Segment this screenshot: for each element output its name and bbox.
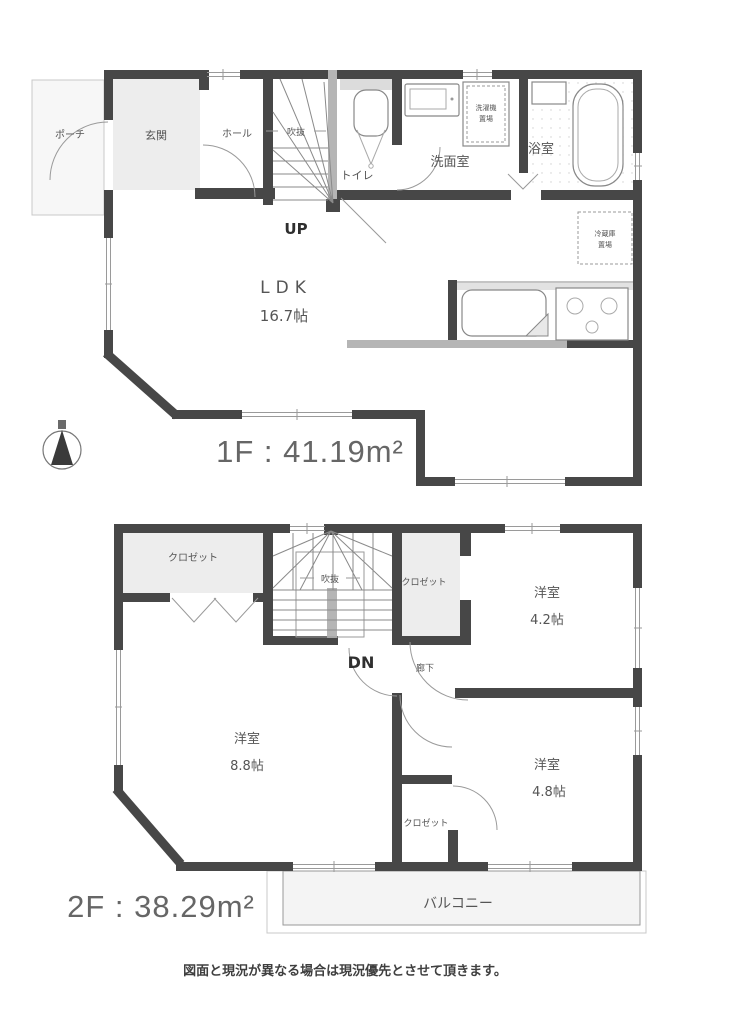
floor2-plan: クロゼット クロゼット 吹抜 DN 廊下 洋室 4.2帖 洋室 8.8帖 洋室 …	[67, 523, 646, 933]
washroom-label: 洗面室	[430, 154, 469, 170]
ldk-size-label: 16.7帖	[260, 307, 308, 325]
balcony-label: バルコニー	[423, 896, 493, 912]
fridge-label-2: 置場	[598, 240, 612, 249]
floor1-plan: ポーチ 玄関 ホール 吹抜 トイレ UP 洗面室 浴室 洗濯機 置場 冷蔵庫 置…	[32, 69, 642, 487]
kitchen-counter	[457, 282, 633, 340]
staircase-1f	[266, 79, 333, 203]
chamfer-wall-2f	[116, 789, 181, 864]
floor1-area-label: 1F : 41.19m²	[216, 434, 404, 469]
disclaimer-text: 図面と現況が異なる場合は現況優先とさせて頂きます。	[183, 963, 507, 979]
floorplan-image: ポーチ 玄関 ホール 吹抜 トイレ UP 洗面室 浴室 洗濯機 置場 冷蔵庫 置…	[0, 0, 735, 1021]
hall-label: ホール	[222, 128, 252, 140]
room-c-size-label: 4.8帖	[532, 785, 566, 800]
chamfer-wall-1f	[106, 353, 177, 416]
hallway-label: 廊下	[416, 662, 434, 674]
bathroom-label: 浴室	[528, 141, 554, 157]
fridge-label-1: 冷蔵庫	[595, 229, 616, 238]
porch-area	[32, 80, 104, 215]
room-a-label: 洋室	[534, 585, 560, 601]
porch-label: ポーチ	[55, 129, 85, 141]
north-needle	[51, 430, 73, 465]
closet-right-label: クロゼット	[401, 576, 446, 588]
closet-small-label: クロゼット	[403, 817, 448, 829]
room-b-size-label: 8.8帖	[230, 759, 264, 774]
toilet-top-window	[340, 79, 392, 90]
room-c-label: 洋室	[534, 757, 560, 773]
floor2-area-label: 2F : 38.29m²	[67, 889, 255, 924]
toilet-fixture	[354, 90, 388, 168]
toilet-label: トイレ	[341, 169, 374, 182]
ldk-label: LDK	[260, 278, 312, 298]
up-label: UP	[284, 220, 307, 238]
dn-label: DN	[348, 653, 375, 672]
room-a-size-label: 4.2帖	[530, 613, 564, 628]
fridge-space-box	[578, 212, 632, 264]
floorplan-page: ポーチ 玄関 ホール 吹抜 トイレ UP 洗面室 浴室 洗濯機 置場 冷蔵庫 置…	[0, 0, 735, 1021]
closet-left-label: クロゼット	[168, 552, 218, 564]
closet-folding-doors	[172, 598, 258, 622]
void-label-1f: 吹抜	[287, 126, 305, 138]
compass-icon	[43, 420, 81, 469]
stove	[556, 288, 628, 340]
washer-space-box	[463, 82, 509, 146]
room-b-label: 洋室	[234, 731, 260, 747]
washer-label-1: 洗濯機	[476, 103, 497, 112]
entrance-label: 玄関	[145, 128, 167, 142]
washer-label-2: 置場	[479, 114, 493, 123]
void-label-2f: 吹抜	[321, 573, 339, 585]
vanity-sink	[405, 84, 459, 116]
